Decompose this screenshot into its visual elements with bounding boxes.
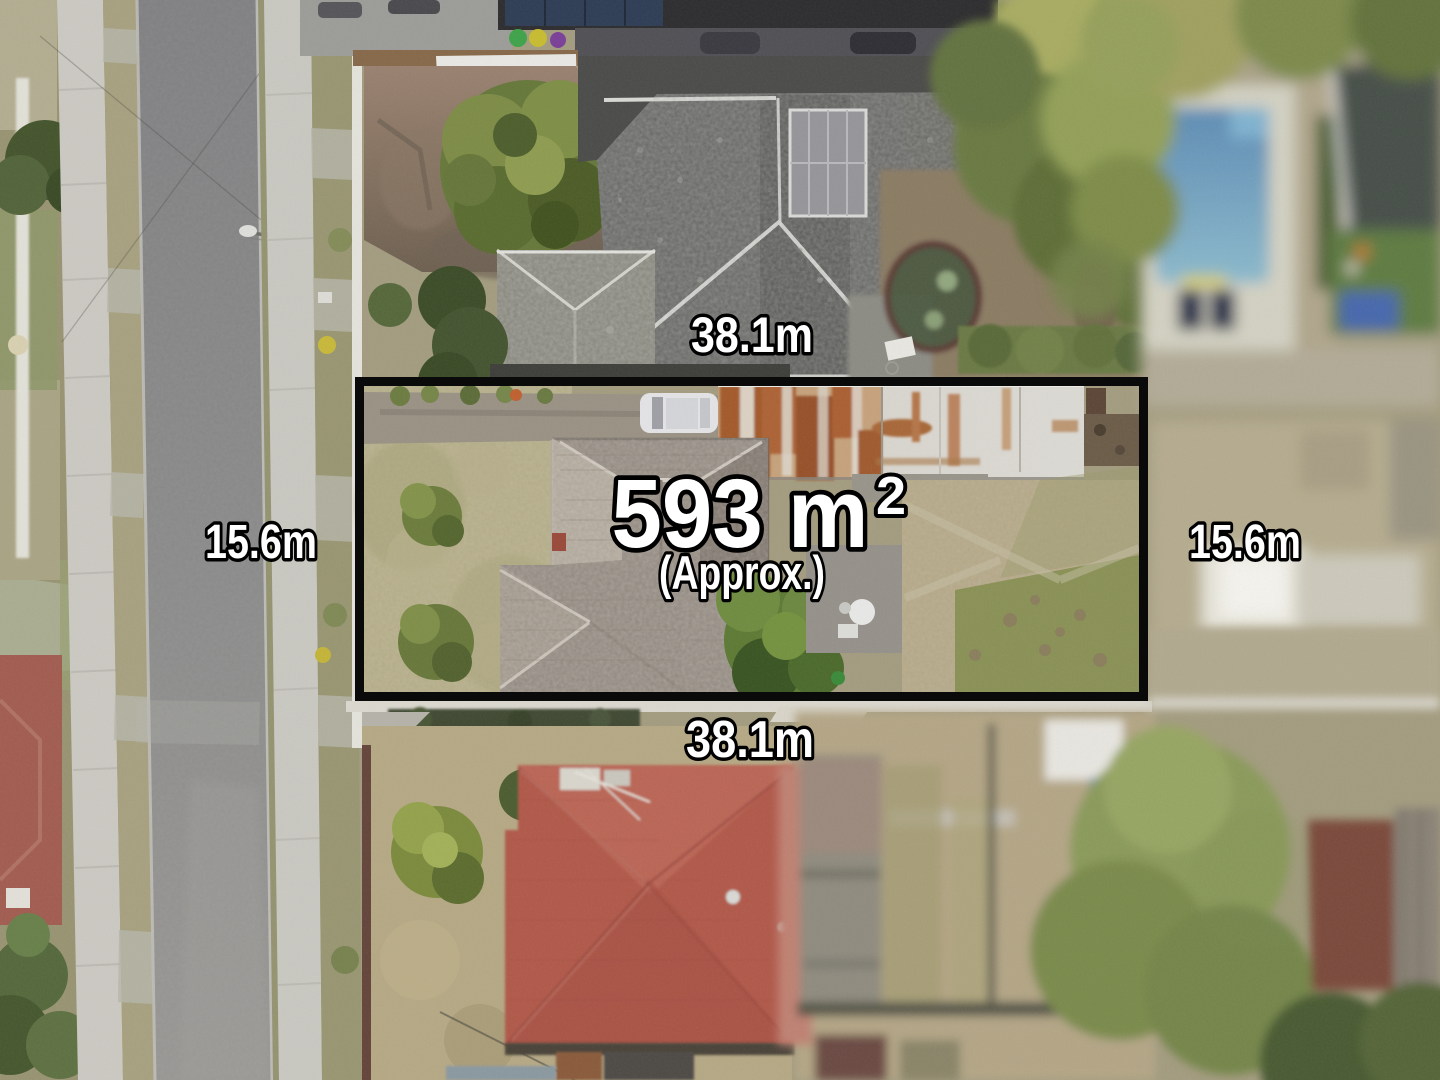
svg-text:38.1m: 38.1m (686, 711, 814, 769)
svg-text:15.6m: 15.6m (205, 516, 317, 569)
svg-text:2: 2 (876, 466, 906, 526)
svg-text:15.6m: 15.6m (1189, 516, 1301, 569)
svg-text:38.1m: 38.1m (691, 307, 813, 363)
svg-text:(Approx.): (Approx.) (659, 546, 825, 599)
